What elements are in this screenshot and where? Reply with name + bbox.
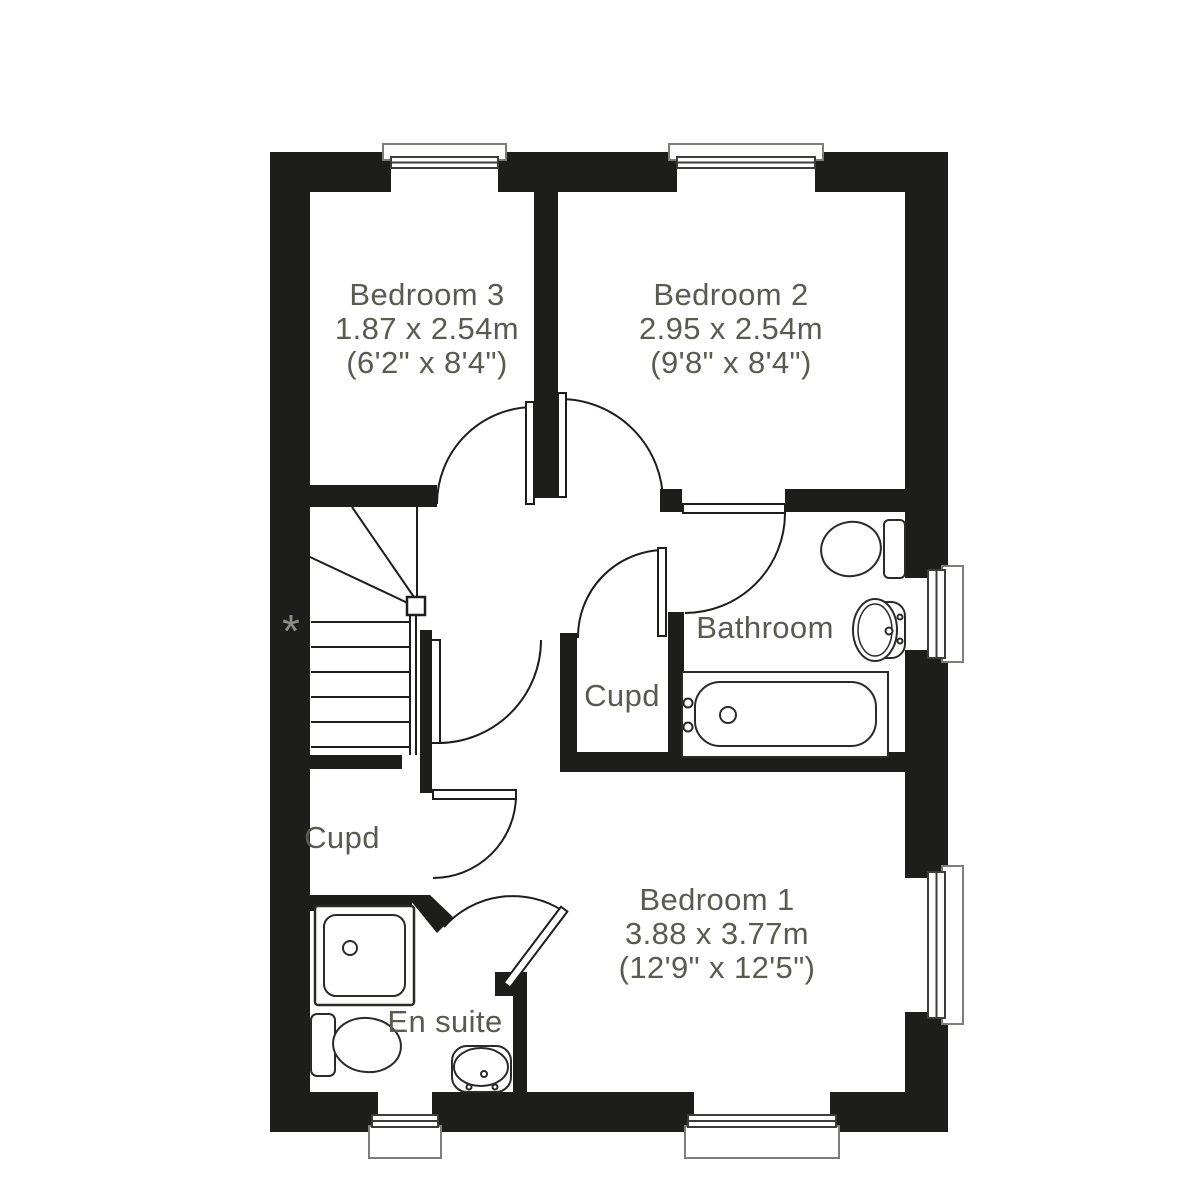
wall-below-stairs bbox=[310, 755, 402, 769]
door-leaf bbox=[683, 504, 785, 513]
window-bathroom bbox=[905, 566, 963, 662]
door-cupd-hall bbox=[433, 790, 516, 878]
window-bedroom1-east bbox=[905, 866, 963, 1024]
window-bedroom3 bbox=[383, 144, 506, 192]
asterisk-annotation: * bbox=[282, 608, 300, 654]
floor-plan-drawing bbox=[0, 0, 1200, 1200]
door-bathroom bbox=[683, 504, 785, 613]
door-cupd-landing bbox=[578, 548, 666, 638]
room-name: Bathroom bbox=[696, 611, 834, 645]
en-suite-basin-icon bbox=[452, 1046, 511, 1092]
wall-top bbox=[270, 152, 948, 192]
wall-bathroom-top-right bbox=[785, 489, 905, 512]
wall-cupd-landing-west bbox=[560, 633, 577, 772]
ensuite-fixtures bbox=[311, 906, 511, 1092]
window-bedroom2 bbox=[669, 144, 823, 192]
stairs-newel-post bbox=[407, 597, 425, 615]
door-leaf bbox=[433, 790, 516, 799]
door-bedroom3 bbox=[437, 402, 534, 504]
room-size-imperial: (9'8" x 8'4") bbox=[639, 346, 823, 380]
room-label-bedroom-2: Bedroom 2 2.95 x 2.54m (9'8" x 8'4") bbox=[639, 278, 823, 380]
shower-tray-icon bbox=[315, 906, 414, 1005]
door-leaf bbox=[558, 393, 566, 497]
room-size-metric: 2.95 x 2.54m bbox=[639, 312, 823, 346]
door-leaf bbox=[526, 402, 534, 504]
wall-below-bedroom3 bbox=[310, 485, 437, 507]
door-leaf bbox=[658, 548, 666, 636]
floor-plan: Bedroom 3 1.87 x 2.54m (6'2" x 8'4") Bed… bbox=[0, 0, 1200, 1200]
door-leaf bbox=[504, 907, 568, 988]
window-bedroom1-south bbox=[685, 1092, 839, 1158]
door-bedroom2 bbox=[558, 393, 663, 503]
door-leaf bbox=[431, 640, 440, 743]
room-size-imperial: (12'9" x 12'5") bbox=[619, 951, 816, 985]
room-name: Cupd bbox=[304, 821, 380, 855]
room-label-bedroom-1: Bedroom 1 3.88 x 3.77m (12'9" x 12'5") bbox=[619, 883, 816, 985]
stairs-icon bbox=[310, 507, 425, 755]
door-landing-hall bbox=[431, 640, 541, 743]
window-ensuite bbox=[369, 1092, 441, 1158]
room-name: Cupd bbox=[584, 679, 660, 713]
toilet-icon bbox=[815, 516, 905, 583]
room-label-en-suite: En suite bbox=[387, 1005, 502, 1039]
room-label-bedroom-3: Bedroom 3 1.87 x 2.54m (6'2" x 8'4") bbox=[335, 278, 519, 380]
room-name: Bedroom 2 bbox=[639, 278, 823, 312]
pedestal-basin-icon bbox=[853, 599, 905, 661]
room-name: Bedroom 1 bbox=[619, 883, 816, 917]
room-name: En suite bbox=[387, 1005, 502, 1039]
room-size-imperial: (6'2" x 8'4") bbox=[335, 346, 519, 380]
room-name: Bedroom 3 bbox=[335, 278, 519, 312]
room-label-bathroom: Bathroom bbox=[696, 611, 834, 645]
bath-icon bbox=[682, 672, 888, 757]
wall-ensuite-east bbox=[513, 992, 527, 1092]
room-label-cupd-landing: Cupd bbox=[584, 679, 660, 713]
room-size-metric: 1.87 x 2.54m bbox=[335, 312, 519, 346]
room-label-cupd-hall: Cupd bbox=[304, 821, 380, 855]
wall-bed2-bed3-partition bbox=[534, 192, 558, 498]
room-size-metric: 3.88 x 3.77m bbox=[619, 917, 816, 951]
